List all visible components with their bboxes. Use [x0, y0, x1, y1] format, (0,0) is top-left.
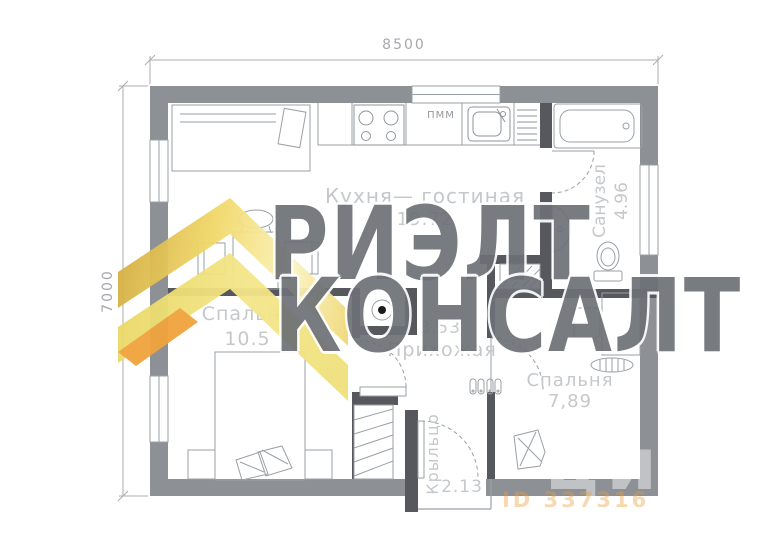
- room-area-porch: 2.13: [436, 477, 488, 497]
- dimension-width-label: 8500: [150, 37, 658, 53]
- stove: [354, 105, 404, 145]
- hallway-closet: [354, 405, 393, 479]
- watermark-agency-line2: КОНСАЛТ: [274, 266, 742, 368]
- floor-plan-image: 8500 7000 Кухня— гостиная 19.72 Санузел …: [0, 0, 778, 559]
- room-label-bathroom: Санузел: [589, 145, 611, 257]
- room-label-block-bathroom: Санузел 4.96: [589, 145, 635, 257]
- watermark-listing-id: ID 337316: [502, 488, 649, 512]
- room-area-bathroom: 4.96: [611, 145, 633, 257]
- dishwasher-label: ПММ: [419, 110, 463, 121]
- door-leaf-bedroom-left: [360, 387, 406, 396]
- sketch-chair: [514, 430, 545, 469]
- fridge-vents: [517, 110, 537, 140]
- room-area-bedroom-right: 7,89: [528, 391, 612, 412]
- shoes: [470, 379, 501, 394]
- sofa-bed: [172, 105, 310, 171]
- kitchen-sink: [468, 107, 510, 141]
- bathtub: [554, 104, 642, 148]
